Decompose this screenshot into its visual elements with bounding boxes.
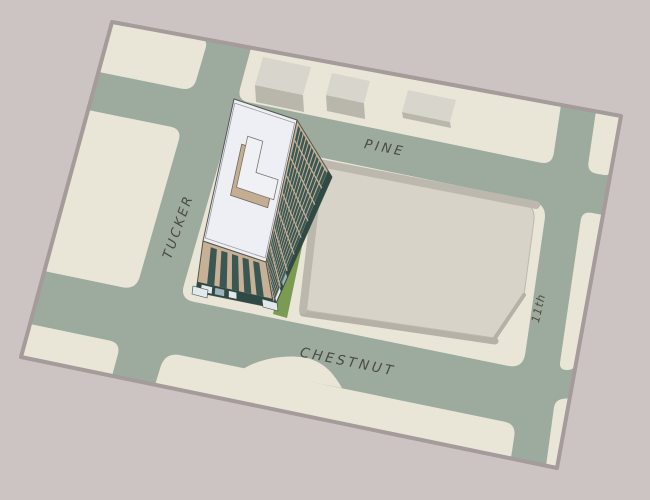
site-plan-shapes — [21, 22, 621, 468]
site-plan-page: PINE TUCKER CHESTNUT 11th — [0, 0, 650, 500]
tower-window-strip — [232, 254, 239, 291]
site-plan: PINE TUCKER CHESTNUT 11th — [0, 0, 650, 500]
